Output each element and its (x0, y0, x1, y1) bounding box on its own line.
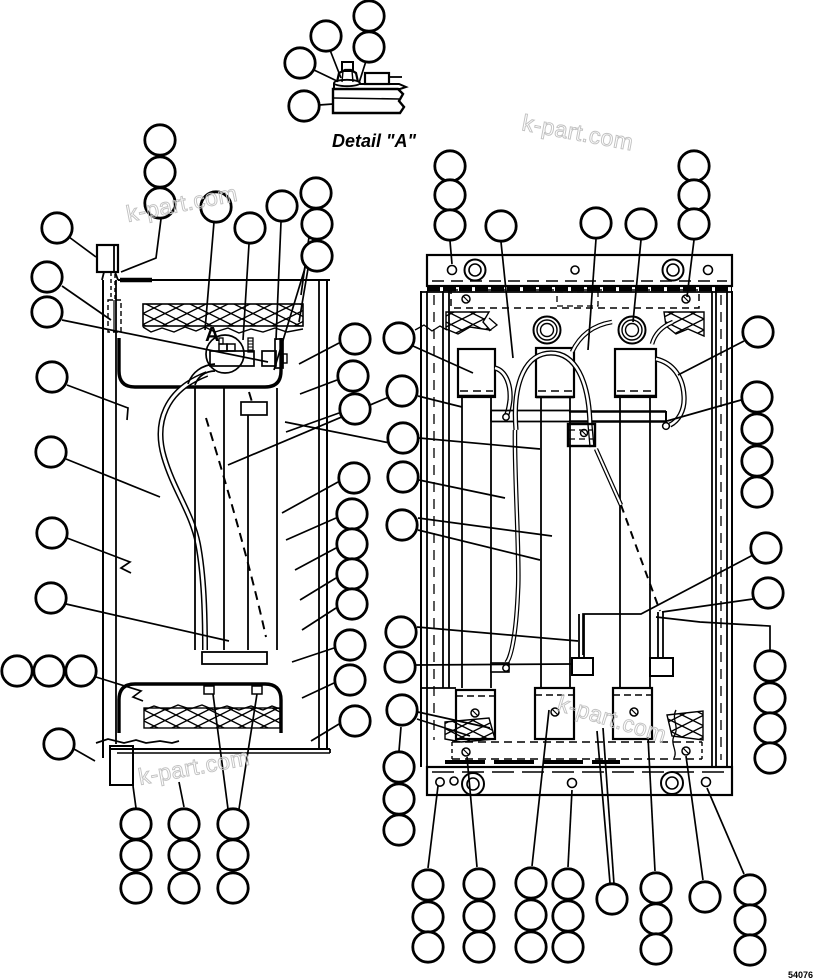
svg-text:54076: 54076 (788, 970, 813, 980)
svg-text:k-part.com: k-part.com (520, 109, 635, 155)
svg-text:k-part.com: k-part.com (136, 744, 251, 790)
svg-text:Detail "A": Detail "A" (332, 131, 417, 151)
svg-text:A: A (205, 324, 219, 346)
